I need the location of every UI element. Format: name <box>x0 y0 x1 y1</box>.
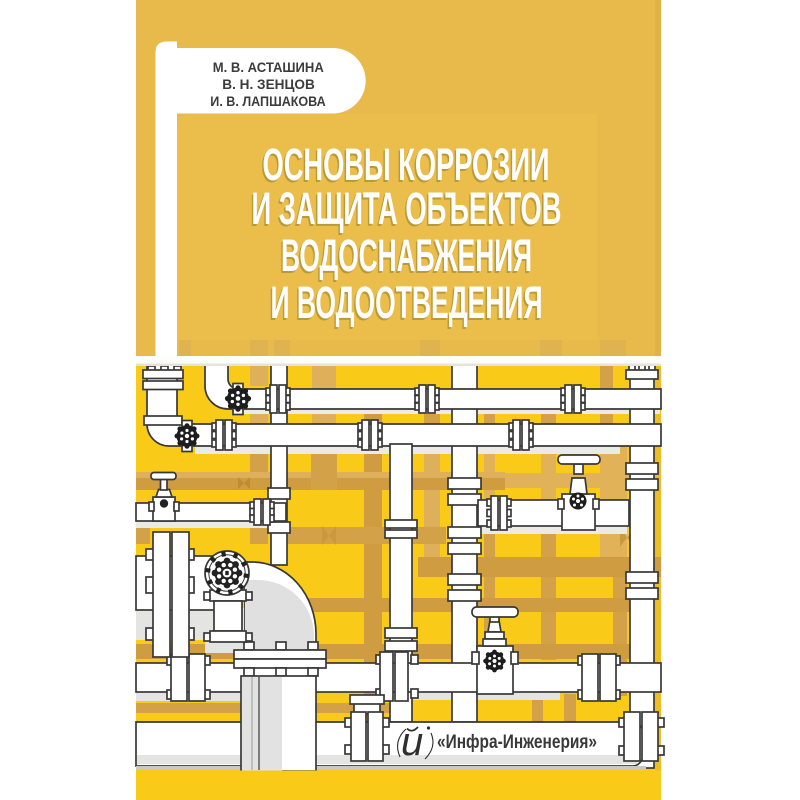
svg-text:И ЗАЩИТА ОБЪЕКТОВ: И ЗАЩИТА ОБЪЕКТОВ <box>252 183 562 234</box>
svg-text:ВОДОСНАБЖЕНИЯ: ВОДОСНАБЖЕНИЯ <box>281 230 532 281</box>
svg-text:М. В. АСТАШИНА: М. В. АСТАШИНА <box>213 59 324 75</box>
svg-text:и: и <box>401 720 423 764</box>
svg-text:И. В. ЛАПШАКОВА: И. В. ЛАПШАКОВА <box>210 93 325 109</box>
svg-text:«Инфра-Инженерия»: «Инфра-Инженерия» <box>437 732 597 753</box>
svg-text:И ВОДООТВЕДЕНИЯ: И ВОДООТВЕДЕНИЯ <box>271 277 543 328</box>
svg-text:В. Н. ЗЕНЦОВ: В. Н. ЗЕНЦОВ <box>222 76 314 92</box>
